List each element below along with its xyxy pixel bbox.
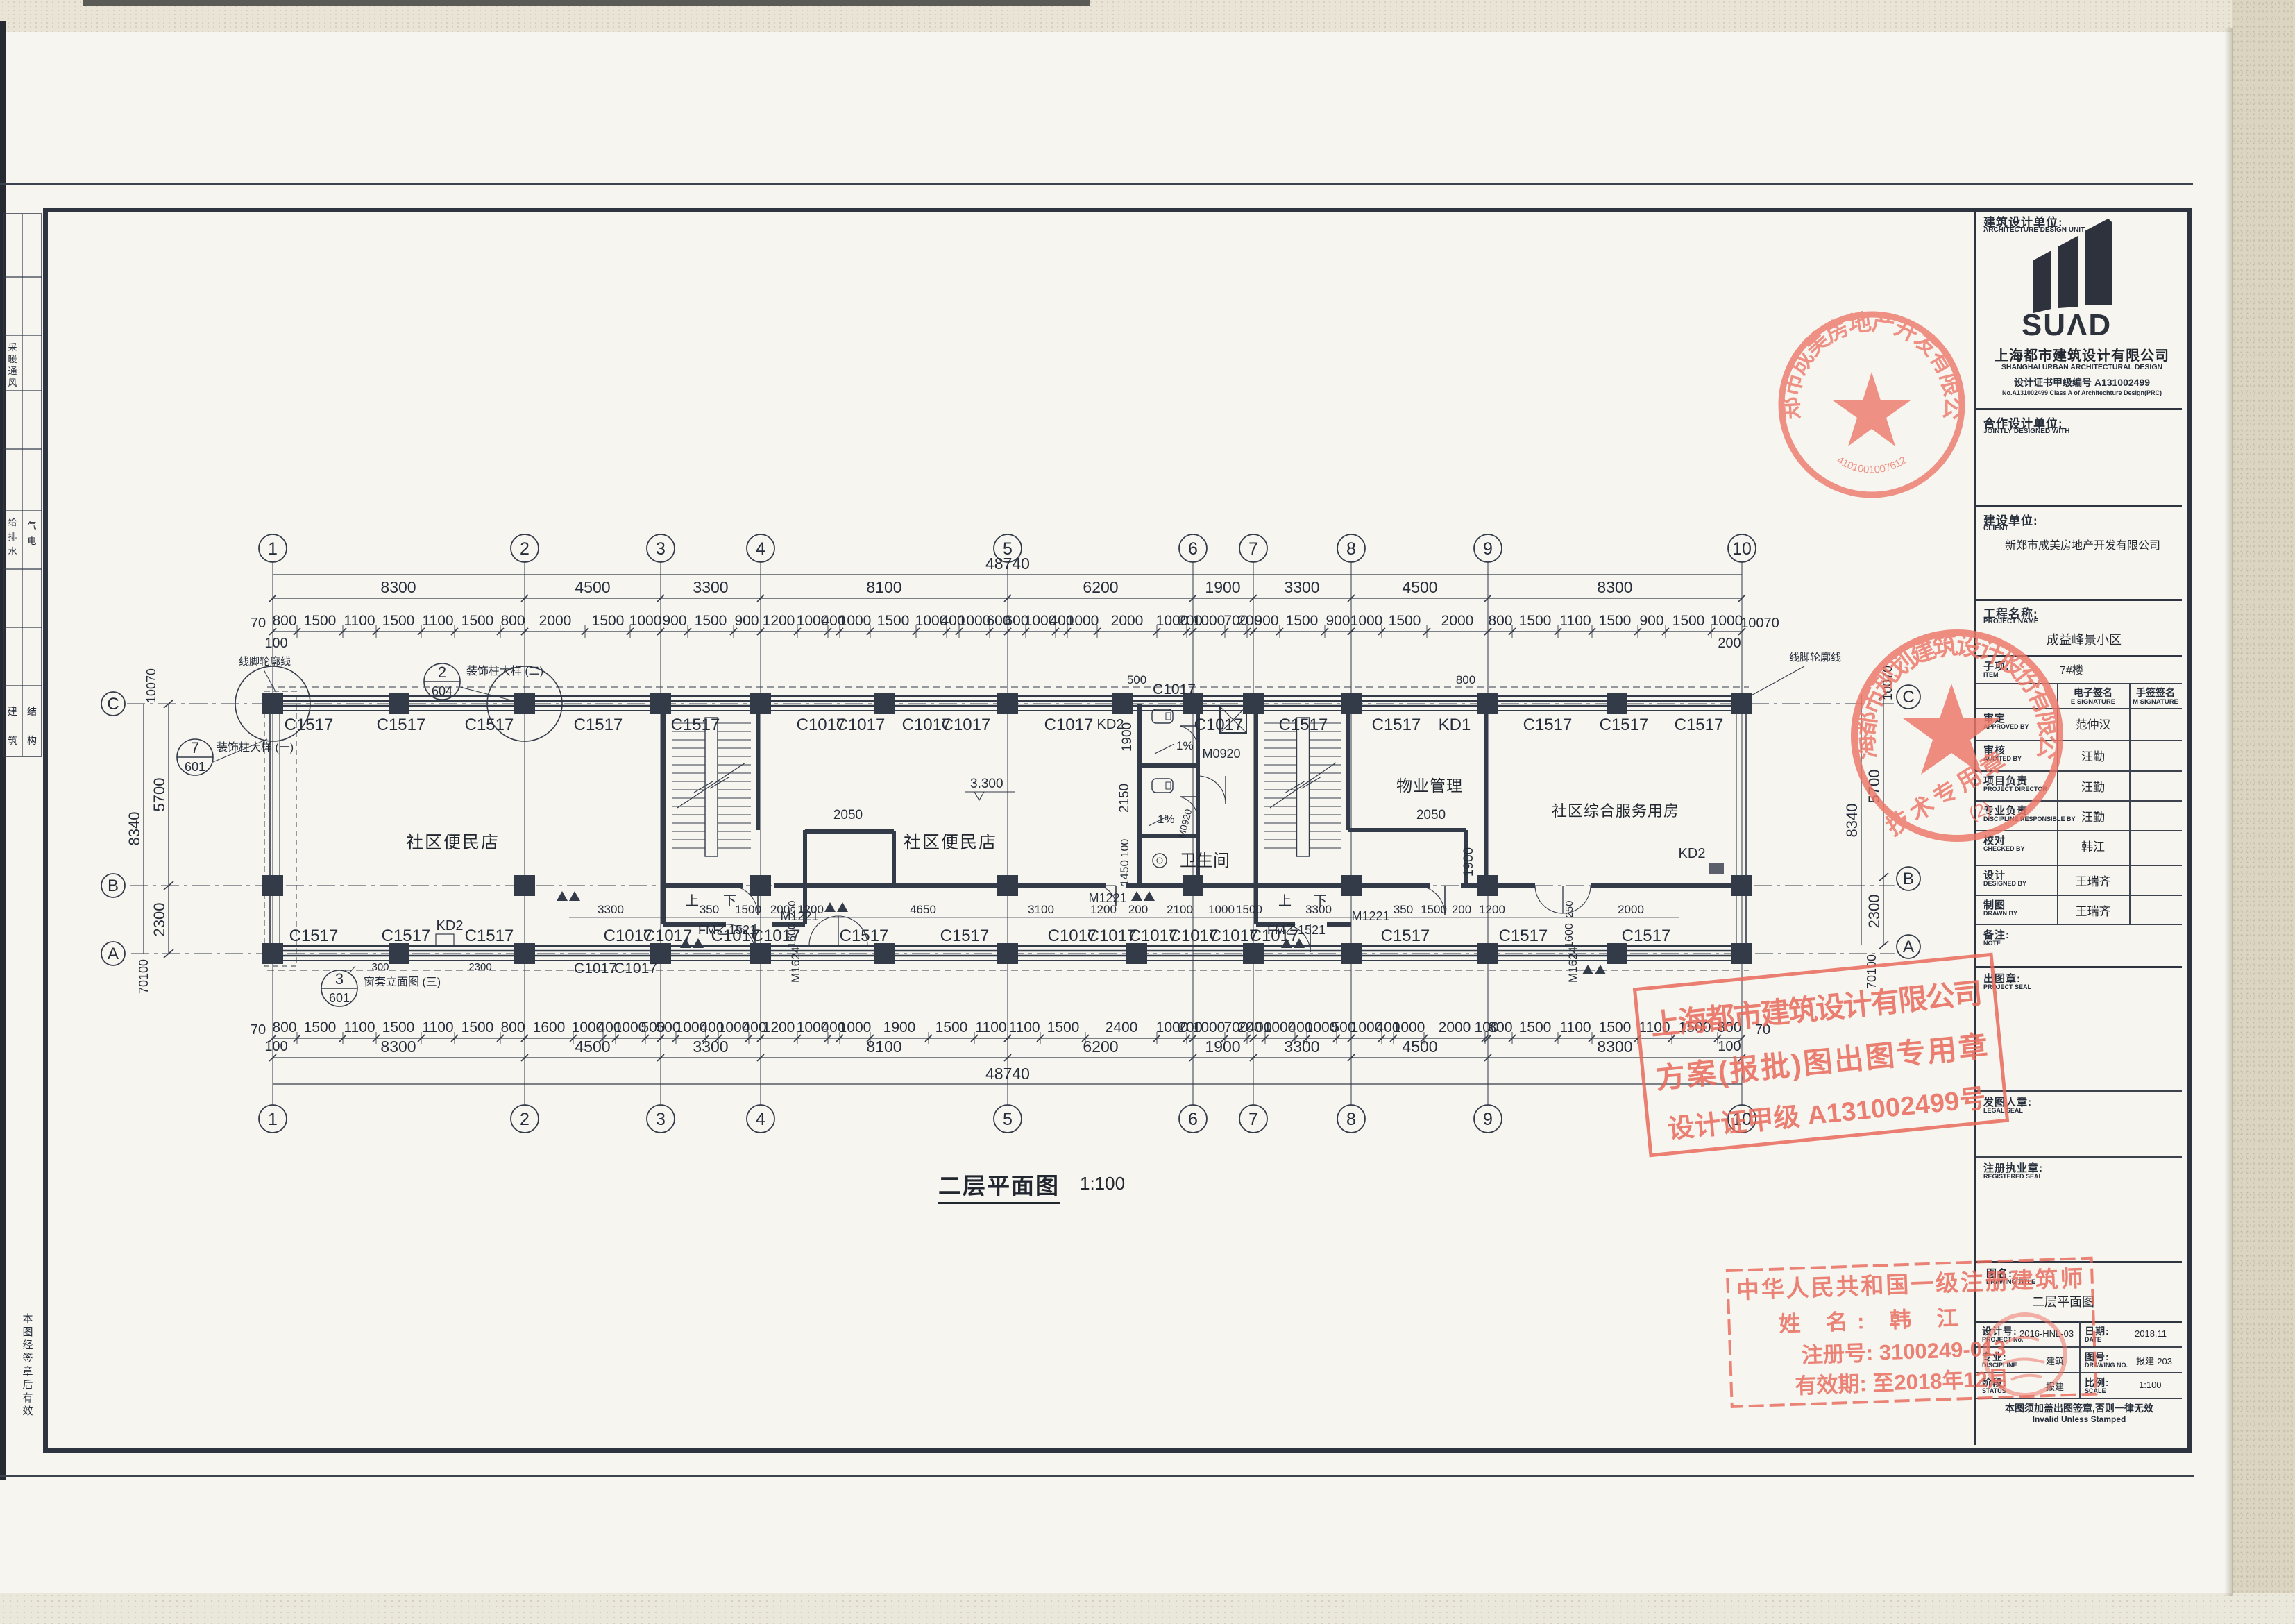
svg-text:(2): (2) bbox=[1966, 797, 1994, 824]
svg-text:新郑市成美房地产开发有限公司: 新郑市成美房地产开发有限公司 bbox=[0, 0, 1967, 421]
svg-text:方案(报批)图出图专用章: 方案(报批)图出图专用章 bbox=[1654, 1030, 1989, 1095]
svg-text:姓 名: 韩 江: 姓 名: 韩 江 bbox=[1779, 1305, 1968, 1336]
svg-text:上海都市规划建筑设计股份有限公司: 上海都市规划建筑设计股份有限公司 bbox=[0, 0, 2064, 761]
svg-text:技术专用章: 技术专用章 bbox=[1881, 745, 2013, 841]
svg-text:上海都市建筑设计有限公司: 上海都市建筑设计有限公司 bbox=[1649, 976, 1983, 1042]
svg-text:设计证甲级 A131002499号: 设计证甲级 A131002499号 bbox=[1666, 1084, 1987, 1144]
svg-text:4101001007612: 4101001007612 bbox=[1835, 455, 1908, 476]
svg-text:注册号: 3100249-013: 注册号: 3100249-013 bbox=[1801, 1336, 2006, 1367]
svg-text:中华人民共和国一级注册建筑师: 中华人民共和国一级注册建筑师 bbox=[1736, 1265, 2083, 1303]
svg-text:有效期: 至2018年12月: 有效期: 至2018年12月 bbox=[1795, 1367, 2009, 1398]
